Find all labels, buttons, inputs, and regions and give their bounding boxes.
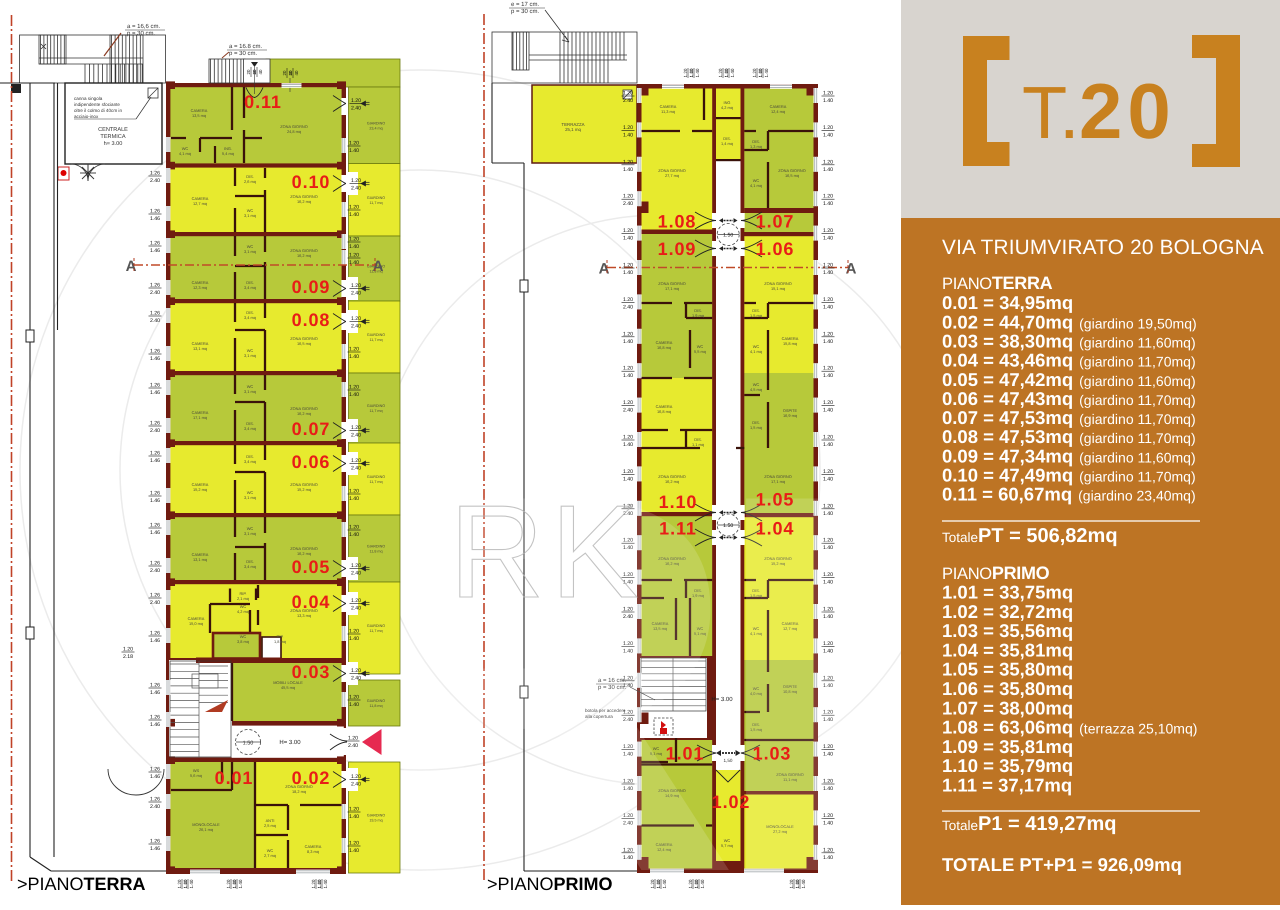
svg-text:16,8 mq: 16,8 mq bbox=[657, 345, 671, 350]
svg-text:1.20: 1.20 bbox=[623, 194, 633, 200]
svg-text:a = 16,6 cm.: a = 16,6 cm. bbox=[127, 23, 161, 30]
svg-text:1.20: 1.20 bbox=[758, 68, 763, 77]
svg-text:1.20: 1.20 bbox=[349, 141, 359, 147]
svg-text:1.40: 1.40 bbox=[823, 98, 833, 104]
svg-text:1.26: 1.26 bbox=[150, 767, 160, 773]
svg-text:11,7 mq: 11,7 mq bbox=[369, 629, 382, 633]
svg-text:1.02 = 32,72mq: 1.02 = 32,72mq bbox=[942, 601, 1073, 622]
svg-text:acciaio-inox: acciaio-inox bbox=[74, 114, 99, 119]
svg-text:A: A bbox=[599, 261, 610, 278]
svg-text:3,4 mq: 3,4 mq bbox=[244, 564, 256, 569]
svg-text:3,1 mq: 3,1 mq bbox=[244, 531, 256, 536]
svg-text:1.40: 1.40 bbox=[323, 879, 328, 888]
svg-text:1.26: 1.26 bbox=[150, 383, 160, 389]
svg-text:1.40: 1.40 bbox=[349, 148, 359, 154]
svg-text:1,4 mq: 1,4 mq bbox=[721, 141, 733, 146]
svg-text:2.40: 2.40 bbox=[150, 290, 160, 296]
svg-text:1,8 mq: 1,8 mq bbox=[274, 639, 286, 644]
svg-text:1.26: 1.26 bbox=[150, 593, 160, 599]
svg-text:11,3 mq: 11,3 mq bbox=[661, 109, 675, 114]
svg-text:13,1 mq: 13,1 mq bbox=[193, 346, 207, 351]
svg-text:1.40: 1.40 bbox=[823, 167, 833, 173]
svg-text:GIARDINO: GIARDINO bbox=[367, 699, 385, 703]
svg-text:3,4 mq: 3,4 mq bbox=[244, 459, 256, 464]
svg-text:13,3 mq: 13,3 mq bbox=[297, 613, 311, 618]
svg-text:GIARDINO: GIARDINO bbox=[367, 475, 385, 479]
svg-text:0.02 = 44,70mq(giardino 19,50m: 0.02 = 44,70mq(giardino 19,50mq) bbox=[942, 311, 1197, 332]
svg-text:27,7 mq: 27,7 mq bbox=[665, 173, 679, 178]
svg-text:2,1 mq: 2,1 mq bbox=[237, 596, 249, 601]
svg-text:1.26: 1.26 bbox=[150, 561, 160, 567]
svg-text:1.20: 1.20 bbox=[689, 68, 694, 77]
svg-text:0.09 = 47,34mq(giardino 11,60m: 0.09 = 47,34mq(giardino 11,60mq) bbox=[942, 445, 1196, 466]
svg-text:1.40: 1.40 bbox=[349, 848, 359, 854]
svg-text:1.20: 1.20 bbox=[349, 841, 359, 847]
svg-text:15,8 mq: 15,8 mq bbox=[783, 341, 797, 346]
svg-text:16,2 mq: 16,2 mq bbox=[297, 199, 311, 204]
svg-text:1,5 mq: 1,5 mq bbox=[750, 313, 762, 318]
svg-text:GIARDINO: GIARDINO bbox=[367, 814, 385, 818]
svg-text:RK: RK bbox=[449, 478, 644, 625]
svg-text:1.40: 1.40 bbox=[623, 132, 633, 138]
svg-text:0.02: 0.02 bbox=[292, 768, 331, 788]
svg-text:26,1 mq: 26,1 mq bbox=[199, 827, 213, 832]
svg-text:2.40: 2.40 bbox=[348, 743, 358, 749]
svg-text:1.20: 1.20 bbox=[349, 253, 359, 259]
svg-text:1.20: 1.20 bbox=[823, 331, 833, 337]
svg-text:T.: T. bbox=[1022, 71, 1080, 154]
svg-text:1.40: 1.40 bbox=[349, 212, 359, 218]
svg-text:1.05 = 35,80mq: 1.05 = 35,80mq bbox=[942, 659, 1073, 680]
svg-text:45,5 mq: 45,5 mq bbox=[281, 685, 295, 690]
svg-text:0.08: 0.08 bbox=[292, 310, 331, 330]
svg-text:1.08: 1.08 bbox=[658, 212, 697, 232]
svg-text:0.09: 0.09 bbox=[292, 277, 331, 297]
svg-text:1.20: 1.20 bbox=[349, 525, 359, 531]
svg-text:1.40: 1.40 bbox=[695, 68, 700, 77]
svg-text:11,8 mq: 11,8 mq bbox=[369, 550, 382, 554]
svg-text:24,8 mq: 24,8 mq bbox=[287, 129, 301, 134]
svg-text:1.46: 1.46 bbox=[150, 216, 160, 222]
svg-text:3,4 mq: 3,4 mq bbox=[244, 426, 256, 431]
svg-text:1.20: 1.20 bbox=[348, 736, 358, 742]
svg-text:1.26: 1.26 bbox=[150, 171, 160, 177]
svg-text:A: A bbox=[126, 258, 137, 275]
svg-text:2.40: 2.40 bbox=[351, 291, 361, 297]
svg-text:1.08 = 63,06mq(terrazza 25,10m: 1.08 = 63,06mq(terrazza 25,10mq) bbox=[942, 717, 1197, 738]
svg-text:0.04 = 43,46mq(giardino 11,70m: 0.04 = 43,46mq(giardino 11,70mq) bbox=[942, 350, 1196, 371]
svg-text:3,1 mq: 3,1 mq bbox=[244, 213, 256, 218]
svg-text:1.20: 1.20 bbox=[823, 263, 833, 269]
svg-text:1.20: 1.20 bbox=[232, 879, 237, 888]
svg-text:2.40: 2.40 bbox=[623, 201, 633, 207]
svg-text:0.08 = 47,53mq(giardino 11,70m: 0.08 = 47,53mq(giardino 11,70mq) bbox=[942, 426, 1196, 447]
svg-text:canna singola: canna singola bbox=[74, 96, 103, 101]
svg-text:3,1 mq: 3,1 mq bbox=[244, 495, 256, 500]
svg-text:5,5 mq: 5,5 mq bbox=[694, 349, 706, 354]
svg-text:1.10 = 35,79mq: 1.10 = 35,79mq bbox=[942, 755, 1073, 776]
svg-text:1.20: 1.20 bbox=[823, 91, 833, 97]
svg-text:20: 20 bbox=[282, 70, 287, 75]
svg-text:4,1 mq: 4,1 mq bbox=[750, 349, 762, 354]
svg-text:1.07 = 38,00mq: 1.07 = 38,00mq bbox=[942, 697, 1073, 718]
svg-text:1.06 = 35,80mq: 1.06 = 35,80mq bbox=[942, 678, 1073, 699]
svg-text:11,7 mq: 11,7 mq bbox=[369, 480, 382, 484]
svg-text:1.20: 1.20 bbox=[823, 297, 833, 303]
svg-text:1.46: 1.46 bbox=[150, 248, 160, 254]
svg-text:1.40: 1.40 bbox=[349, 392, 359, 398]
svg-text:1.40: 1.40 bbox=[349, 354, 359, 360]
svg-text:2.40: 2.40 bbox=[150, 568, 160, 574]
svg-text:1.26: 1.26 bbox=[150, 797, 160, 803]
svg-text:1.20: 1.20 bbox=[623, 263, 633, 269]
svg-text:2.40: 2.40 bbox=[351, 433, 361, 439]
svg-text:GIARDINO: GIARDINO bbox=[367, 121, 385, 125]
svg-text:1.20: 1.20 bbox=[351, 178, 361, 184]
svg-text:2.40: 2.40 bbox=[150, 804, 160, 810]
svg-text:PIANOPRIMO: PIANOPRIMO bbox=[942, 563, 1050, 583]
svg-text:0.05: 0.05 bbox=[292, 557, 331, 577]
svg-text:23,4 mq: 23,4 mq bbox=[369, 126, 382, 130]
svg-text:2.40: 2.40 bbox=[351, 324, 361, 330]
svg-text:1.20: 1.20 bbox=[349, 385, 359, 391]
svg-text:2.40: 2.40 bbox=[351, 676, 361, 682]
svg-text:1.40: 1.40 bbox=[823, 236, 833, 242]
svg-text:0.04: 0.04 bbox=[292, 592, 331, 612]
svg-text:1.40: 1.40 bbox=[623, 167, 633, 173]
svg-text:1.20: 1.20 bbox=[317, 879, 322, 888]
svg-text:1.20: 1.20 bbox=[349, 807, 359, 813]
svg-text:4,1 mq: 4,1 mq bbox=[179, 151, 191, 156]
svg-text:1.20: 1.20 bbox=[623, 91, 633, 97]
svg-text:40: 40 bbox=[258, 69, 263, 74]
svg-text:indipendente sfociante: indipendente sfociante bbox=[74, 102, 120, 107]
svg-text:1.20: 1.20 bbox=[351, 283, 361, 289]
svg-text:1.46: 1.46 bbox=[150, 356, 160, 362]
svg-text:GIARDINO: GIARDINO bbox=[367, 545, 385, 549]
svg-text:p = 30 cm.: p = 30 cm. bbox=[229, 50, 258, 57]
svg-text:15,2 mq: 15,2 mq bbox=[297, 487, 311, 492]
svg-text:2.40: 2.40 bbox=[351, 186, 361, 192]
svg-text:1.26: 1.26 bbox=[150, 683, 160, 689]
svg-text:1.40: 1.40 bbox=[623, 270, 633, 276]
svg-text:0.01 = 34,95mq: 0.01 = 34,95mq bbox=[942, 292, 1073, 313]
svg-text:1.26: 1.26 bbox=[150, 523, 160, 529]
svg-text:1.20: 1.20 bbox=[349, 237, 359, 243]
svg-text:11,8 mq: 11,8 mq bbox=[369, 704, 382, 708]
svg-text:1.11 = 37,17mq: 1.11 = 37,17mq bbox=[942, 775, 1072, 796]
svg-text:2.40: 2.40 bbox=[351, 106, 361, 112]
svg-text:16,2 mq: 16,2 mq bbox=[297, 411, 311, 416]
svg-text:13,1 mq: 13,1 mq bbox=[193, 557, 207, 562]
svg-text:1.46: 1.46 bbox=[150, 846, 160, 852]
svg-text:3,1 mq: 3,1 mq bbox=[244, 353, 256, 358]
svg-text:0.07: 0.07 bbox=[292, 419, 331, 439]
svg-text:1.40: 1.40 bbox=[823, 373, 833, 379]
svg-text:1.09: 1.09 bbox=[658, 239, 697, 259]
svg-text:1.04: 1.04 bbox=[756, 519, 795, 539]
svg-text:1.26: 1.26 bbox=[150, 421, 160, 427]
svg-text:1.20: 1.20 bbox=[349, 489, 359, 495]
svg-text:3,1 mq: 3,1 mq bbox=[244, 249, 256, 254]
svg-text:20: 20 bbox=[246, 69, 251, 74]
svg-text:1.46: 1.46 bbox=[150, 498, 160, 504]
svg-text:1.46: 1.46 bbox=[150, 390, 160, 396]
svg-text:1.20: 1.20 bbox=[351, 668, 361, 674]
svg-text:1.40: 1.40 bbox=[349, 814, 359, 820]
svg-text:2.40: 2.40 bbox=[150, 178, 160, 184]
svg-text:A: A bbox=[846, 261, 857, 278]
svg-text:1.20: 1.20 bbox=[351, 316, 361, 322]
svg-text:1.26: 1.26 bbox=[150, 631, 160, 637]
svg-text:2.40: 2.40 bbox=[351, 606, 361, 612]
svg-text:5,4 mq: 5,4 mq bbox=[222, 151, 234, 156]
svg-text:1.40: 1.40 bbox=[349, 244, 359, 250]
svg-text:1.20: 1.20 bbox=[351, 774, 361, 780]
svg-text:1.40: 1.40 bbox=[764, 68, 769, 77]
svg-text:1.40: 1.40 bbox=[730, 68, 735, 77]
svg-text:1.20: 1.20 bbox=[823, 125, 833, 131]
svg-text:20: 20 bbox=[288, 70, 293, 75]
svg-text:1.40: 1.40 bbox=[823, 339, 833, 345]
svg-text:1.40: 1.40 bbox=[823, 304, 833, 310]
svg-text:1.40: 1.40 bbox=[623, 236, 633, 242]
svg-text:1.11: 1.11 bbox=[659, 519, 697, 539]
svg-text:0.06 = 47,43mq(giardino 11,70m: 0.06 = 47,43mq(giardino 11,70mq) bbox=[942, 388, 1196, 409]
svg-text:1.40: 1.40 bbox=[623, 373, 633, 379]
svg-text:1.50: 1.50 bbox=[723, 233, 733, 239]
svg-text:1.46: 1.46 bbox=[150, 530, 160, 536]
svg-text:2.18: 2.18 bbox=[123, 654, 133, 660]
svg-text:16,2 mq: 16,2 mq bbox=[297, 253, 311, 258]
svg-text:8,3 mq: 8,3 mq bbox=[307, 849, 319, 854]
svg-text:1.46: 1.46 bbox=[150, 690, 160, 696]
svg-text:1.20: 1.20 bbox=[623, 228, 633, 234]
svg-text:12,4 mq: 12,4 mq bbox=[771, 109, 785, 114]
svg-text:1.20: 1.20 bbox=[311, 879, 316, 888]
svg-text:GIARDINO: GIARDINO bbox=[367, 333, 385, 337]
svg-text:1.20: 1.20 bbox=[823, 228, 833, 234]
svg-text:1.40: 1.40 bbox=[349, 636, 359, 642]
svg-text:1,9 mq: 1,9 mq bbox=[692, 313, 704, 318]
svg-text:19,5 mq: 19,5 mq bbox=[369, 819, 382, 823]
svg-text:p = 30 cm.: p = 30 cm. bbox=[127, 30, 156, 37]
svg-text:1.20: 1.20 bbox=[349, 629, 359, 635]
svg-text:4,1 mq: 4,1 mq bbox=[750, 183, 762, 188]
svg-text:1.26: 1.26 bbox=[150, 209, 160, 215]
svg-text:1.20: 1.20 bbox=[724, 68, 729, 77]
svg-text:PIANOTERRA: PIANOTERRA bbox=[942, 273, 1053, 293]
svg-text:17,1 mq: 17,1 mq bbox=[193, 415, 207, 420]
svg-text:1.20: 1.20 bbox=[623, 125, 633, 131]
svg-text:1.20: 1.20 bbox=[351, 98, 361, 104]
svg-text:1.40: 1.40 bbox=[823, 201, 833, 207]
svg-text:2.40: 2.40 bbox=[623, 304, 633, 310]
svg-text:1.07: 1.07 bbox=[756, 212, 795, 232]
svg-text:1.20: 1.20 bbox=[823, 194, 833, 200]
svg-text:16,5 mq: 16,5 mq bbox=[785, 173, 799, 178]
svg-text:2.40: 2.40 bbox=[150, 428, 160, 434]
svg-text:3,4 mq: 3,4 mq bbox=[244, 285, 256, 290]
svg-text:>PIANOTERRA: >PIANOTERRA bbox=[17, 874, 146, 894]
svg-text:2,5 mq: 2,5 mq bbox=[264, 823, 276, 828]
svg-text:2.40: 2.40 bbox=[623, 98, 633, 104]
svg-text:1.46: 1.46 bbox=[150, 638, 160, 644]
svg-text:1.03 = 35,56mq: 1.03 = 35,56mq bbox=[942, 620, 1073, 641]
svg-text:1.26: 1.26 bbox=[150, 491, 160, 497]
svg-text:2.40: 2.40 bbox=[150, 600, 160, 606]
svg-text:40: 40 bbox=[294, 70, 299, 75]
svg-text:1.26: 1.26 bbox=[150, 839, 160, 845]
svg-text:11,7 mq: 11,7 mq bbox=[369, 338, 382, 342]
svg-text:0.03: 0.03 bbox=[292, 662, 331, 682]
svg-text:25,1 mq: 25,1 mq bbox=[565, 127, 581, 132]
svg-text:1.46: 1.46 bbox=[150, 458, 160, 464]
svg-text:1.06: 1.06 bbox=[756, 239, 795, 259]
svg-text:1.20: 1.20 bbox=[123, 647, 133, 653]
svg-text:1.20: 1.20 bbox=[183, 879, 188, 888]
svg-text:0.10: 0.10 bbox=[292, 172, 331, 192]
svg-text:oltre il colmo di 40cm in: oltre il colmo di 40cm in bbox=[74, 108, 122, 113]
svg-text:1.04 = 35,81mq: 1.04 = 35,81mq bbox=[942, 639, 1073, 660]
svg-text:1.20: 1.20 bbox=[349, 695, 359, 701]
svg-text:1.20: 1.20 bbox=[718, 68, 723, 77]
svg-text:1.40: 1.40 bbox=[238, 879, 243, 888]
svg-text:1.20: 1.20 bbox=[623, 159, 633, 165]
svg-text:1.20: 1.20 bbox=[823, 366, 833, 372]
svg-text:1.20: 1.20 bbox=[623, 331, 633, 337]
svg-text:2.40: 2.40 bbox=[351, 571, 361, 577]
svg-text:17,1 mq: 17,1 mq bbox=[665, 286, 679, 291]
svg-text:1.20: 1.20 bbox=[177, 879, 182, 888]
svg-text:1.01 = 33,75mq: 1.01 = 33,75mq bbox=[942, 582, 1073, 603]
svg-text:3,8 mq: 3,8 mq bbox=[237, 639, 249, 644]
svg-text:12,7 mq: 12,7 mq bbox=[193, 201, 207, 206]
svg-text:a = 16.8 cm.: a = 16.8 cm. bbox=[229, 43, 263, 50]
svg-text:0.05 = 47,42mq(giardino 11,60m: 0.05 = 47,42mq(giardino 11,60mq) bbox=[942, 369, 1196, 390]
svg-text:15,1 mq: 15,1 mq bbox=[771, 286, 785, 291]
svg-text:1.20: 1.20 bbox=[351, 563, 361, 569]
svg-text:TERMICA: TERMICA bbox=[100, 134, 125, 140]
svg-text:0.11: 0.11 bbox=[244, 92, 282, 112]
svg-text:e = 17 cm.: e = 17 cm. bbox=[511, 1, 540, 8]
svg-text:GIARDINO: GIARDINO bbox=[367, 404, 385, 408]
svg-text:11,7 mq: 11,7 mq bbox=[369, 201, 382, 205]
svg-text:0.03 = 38,30mq(giardino 11,60m: 0.03 = 38,30mq(giardino 11,60mq) bbox=[942, 331, 1196, 352]
svg-text:4,2 mq: 4,2 mq bbox=[237, 609, 249, 614]
svg-text:1.20: 1.20 bbox=[683, 68, 688, 77]
svg-text:12,3 mq: 12,3 mq bbox=[193, 285, 207, 290]
svg-text:20: 20 bbox=[1079, 67, 1176, 155]
svg-text:1.40: 1.40 bbox=[189, 879, 194, 888]
svg-text:5,6 mq: 5,6 mq bbox=[190, 773, 202, 778]
svg-text:2.40: 2.40 bbox=[351, 466, 361, 472]
svg-text:1.20: 1.20 bbox=[752, 68, 757, 77]
svg-text:4,2 mq: 4,2 mq bbox=[721, 105, 733, 110]
svg-text:1.20: 1.20 bbox=[351, 598, 361, 604]
svg-text:GIARDINO: GIARDINO bbox=[367, 196, 385, 200]
svg-text:1.26: 1.26 bbox=[150, 311, 160, 317]
svg-text:1.10: 1.10 bbox=[659, 492, 698, 512]
svg-text:1.05: 1.05 bbox=[756, 490, 795, 510]
svg-text:0.07 = 47,53mq(giardino 11,70m: 0.07 = 47,53mq(giardino 11,70mq) bbox=[942, 407, 1196, 428]
svg-text:1.26: 1.26 bbox=[150, 451, 160, 457]
svg-text:1,3 mq: 1,3 mq bbox=[750, 144, 762, 149]
svg-text:GIARDINO: GIARDINO bbox=[367, 624, 385, 628]
svg-text:1.26: 1.26 bbox=[150, 241, 160, 247]
svg-text:1.20: 1.20 bbox=[823, 159, 833, 165]
svg-text:0.10 = 47,49mq(giardino 11,70m: 0.10 = 47,49mq(giardino 11,70mq) bbox=[942, 465, 1196, 486]
svg-text:1.01: 1.01 bbox=[666, 744, 705, 764]
svg-text:1.20: 1.20 bbox=[226, 879, 231, 888]
svg-text:1.40: 1.40 bbox=[823, 270, 833, 276]
svg-text:16,5 mq: 16,5 mq bbox=[297, 341, 311, 346]
svg-text:h= 3.00: h= 3.00 bbox=[104, 140, 123, 147]
svg-text:11,7 mq: 11,7 mq bbox=[369, 409, 382, 413]
svg-text:16,2 mq: 16,2 mq bbox=[297, 551, 311, 556]
svg-text:VIA TRIUMVIRATO 20 BOLOGNA: VIA TRIUMVIRATO 20 BOLOGNA bbox=[942, 236, 1264, 259]
svg-text:2,6 mq: 2,6 mq bbox=[244, 179, 256, 184]
svg-text:p = 30 cm.: p = 30 cm. bbox=[511, 8, 540, 15]
svg-text:1.26: 1.26 bbox=[150, 715, 160, 721]
svg-text:1.40: 1.40 bbox=[349, 532, 359, 538]
svg-text:1.26: 1.26 bbox=[150, 349, 160, 355]
svg-text:1.20: 1.20 bbox=[623, 366, 633, 372]
svg-text:1.20: 1.20 bbox=[349, 347, 359, 353]
svg-text:0.06: 0.06 bbox=[292, 452, 331, 472]
svg-text:3,1 mq: 3,1 mq bbox=[244, 389, 256, 394]
svg-text:1.20: 1.20 bbox=[351, 458, 361, 464]
svg-text:A: A bbox=[373, 258, 384, 275]
svg-text:1.40: 1.40 bbox=[349, 702, 359, 708]
svg-text:2.40: 2.40 bbox=[150, 318, 160, 324]
svg-text:1.26: 1.26 bbox=[150, 283, 160, 289]
svg-text:1.20: 1.20 bbox=[623, 297, 633, 303]
svg-text:15,2 mq: 15,2 mq bbox=[193, 487, 207, 492]
svg-text:1.40: 1.40 bbox=[349, 496, 359, 502]
svg-text:1.20: 1.20 bbox=[351, 425, 361, 431]
svg-text:H= 3.00: H= 3.00 bbox=[279, 739, 301, 746]
svg-text:1.46: 1.46 bbox=[150, 774, 160, 780]
svg-text:13,5 mq: 13,5 mq bbox=[192, 113, 206, 118]
svg-text:15,0 mq: 15,0 mq bbox=[189, 621, 203, 626]
svg-text:3,4 mq: 3,4 mq bbox=[244, 315, 256, 320]
svg-text:0.01: 0.01 bbox=[215, 768, 254, 788]
svg-text:1.03: 1.03 bbox=[753, 744, 792, 764]
svg-text:1.02: 1.02 bbox=[712, 792, 751, 812]
svg-text:2,7 mq: 2,7 mq bbox=[264, 853, 276, 858]
svg-text:2.40: 2.40 bbox=[351, 782, 361, 788]
svg-text:18,2 mq: 18,2 mq bbox=[292, 789, 306, 794]
svg-text:1.50: 1.50 bbox=[243, 741, 254, 747]
svg-text:1.20: 1.20 bbox=[349, 205, 359, 211]
svg-text:TOTALE PT+P1 = 926,09mq: TOTALE PT+P1 = 926,09mq bbox=[942, 854, 1182, 875]
svg-text:1.46: 1.46 bbox=[150, 722, 160, 728]
svg-text:1.40: 1.40 bbox=[623, 339, 633, 345]
svg-text:1.40: 1.40 bbox=[823, 132, 833, 138]
svg-text:0.11 = 60,67mq(giardino 23,40m: 0.11 = 60,67mq(giardino 23,40mq) bbox=[942, 484, 1196, 505]
svg-text:CENTRALE: CENTRALE bbox=[98, 127, 128, 133]
svg-text:1.09 = 35,81mq: 1.09 = 35,81mq bbox=[942, 736, 1073, 757]
